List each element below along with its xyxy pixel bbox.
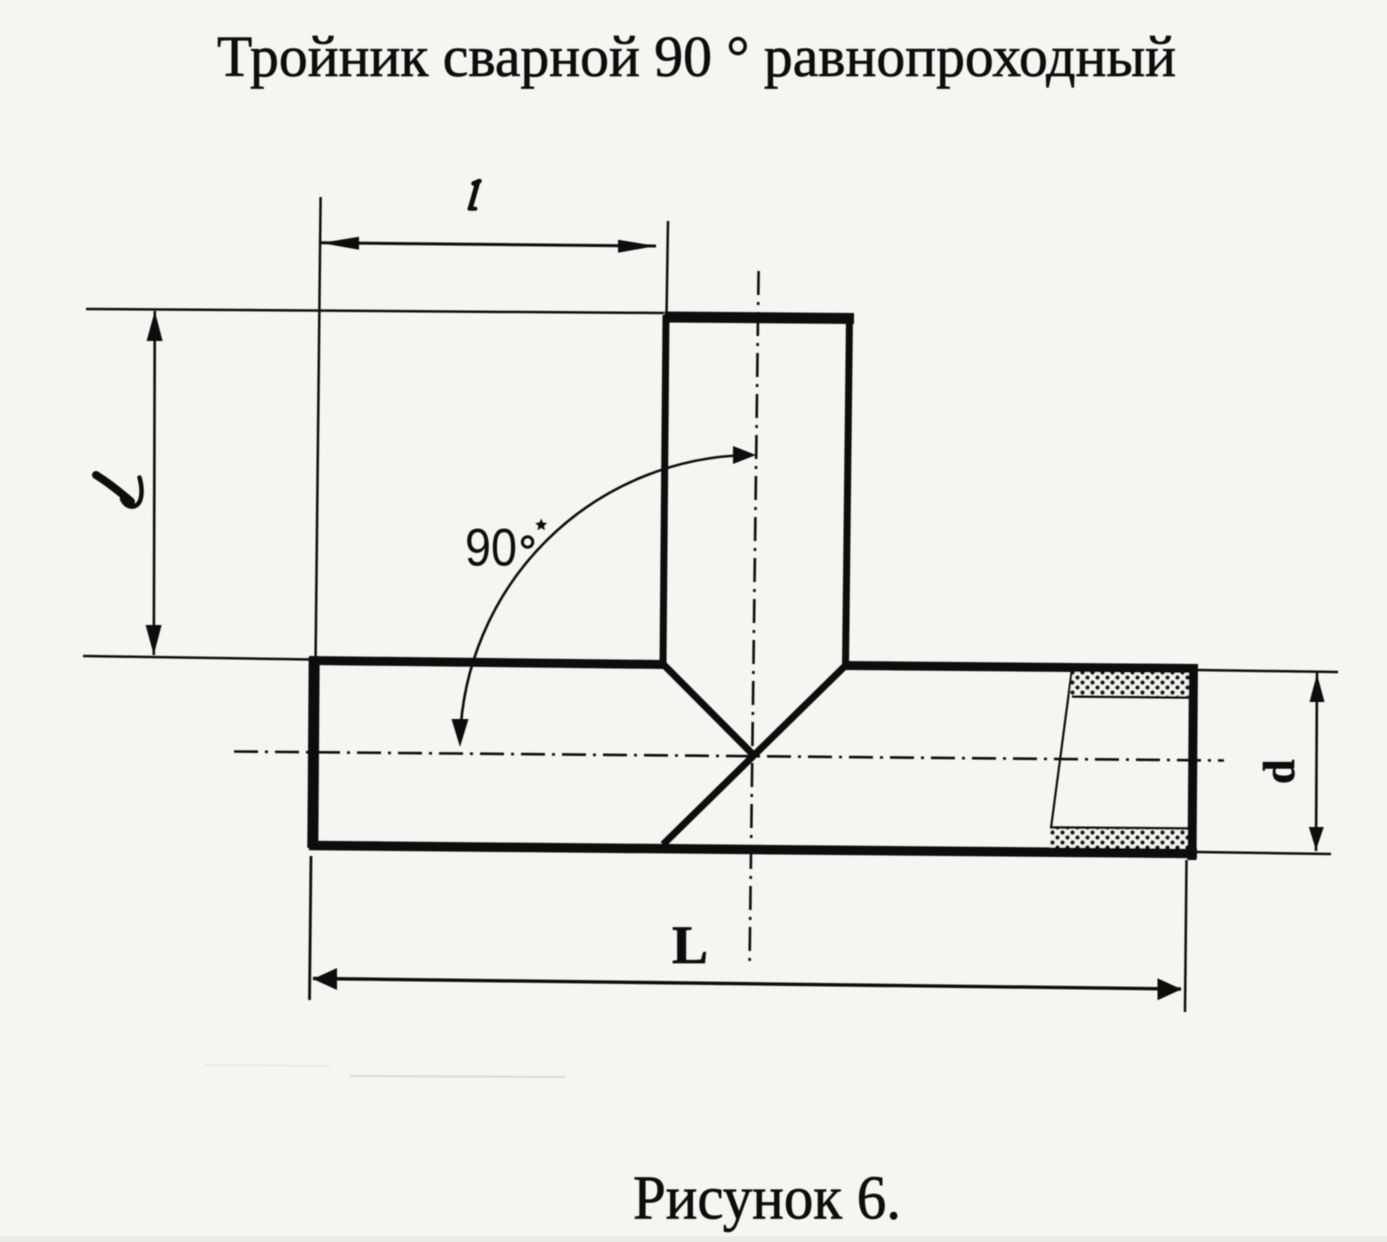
svg-text:L: L <box>672 915 708 975</box>
svg-text:d: d <box>1255 760 1304 784</box>
svg-text:Рисунок 6.: Рисунок 6. <box>633 1165 901 1233</box>
svg-text:Тройник сварной 90 ° равнопрох: Тройник сварной 90 ° равнопроходный <box>217 24 1176 89</box>
svg-text:90: 90 <box>465 519 517 578</box>
